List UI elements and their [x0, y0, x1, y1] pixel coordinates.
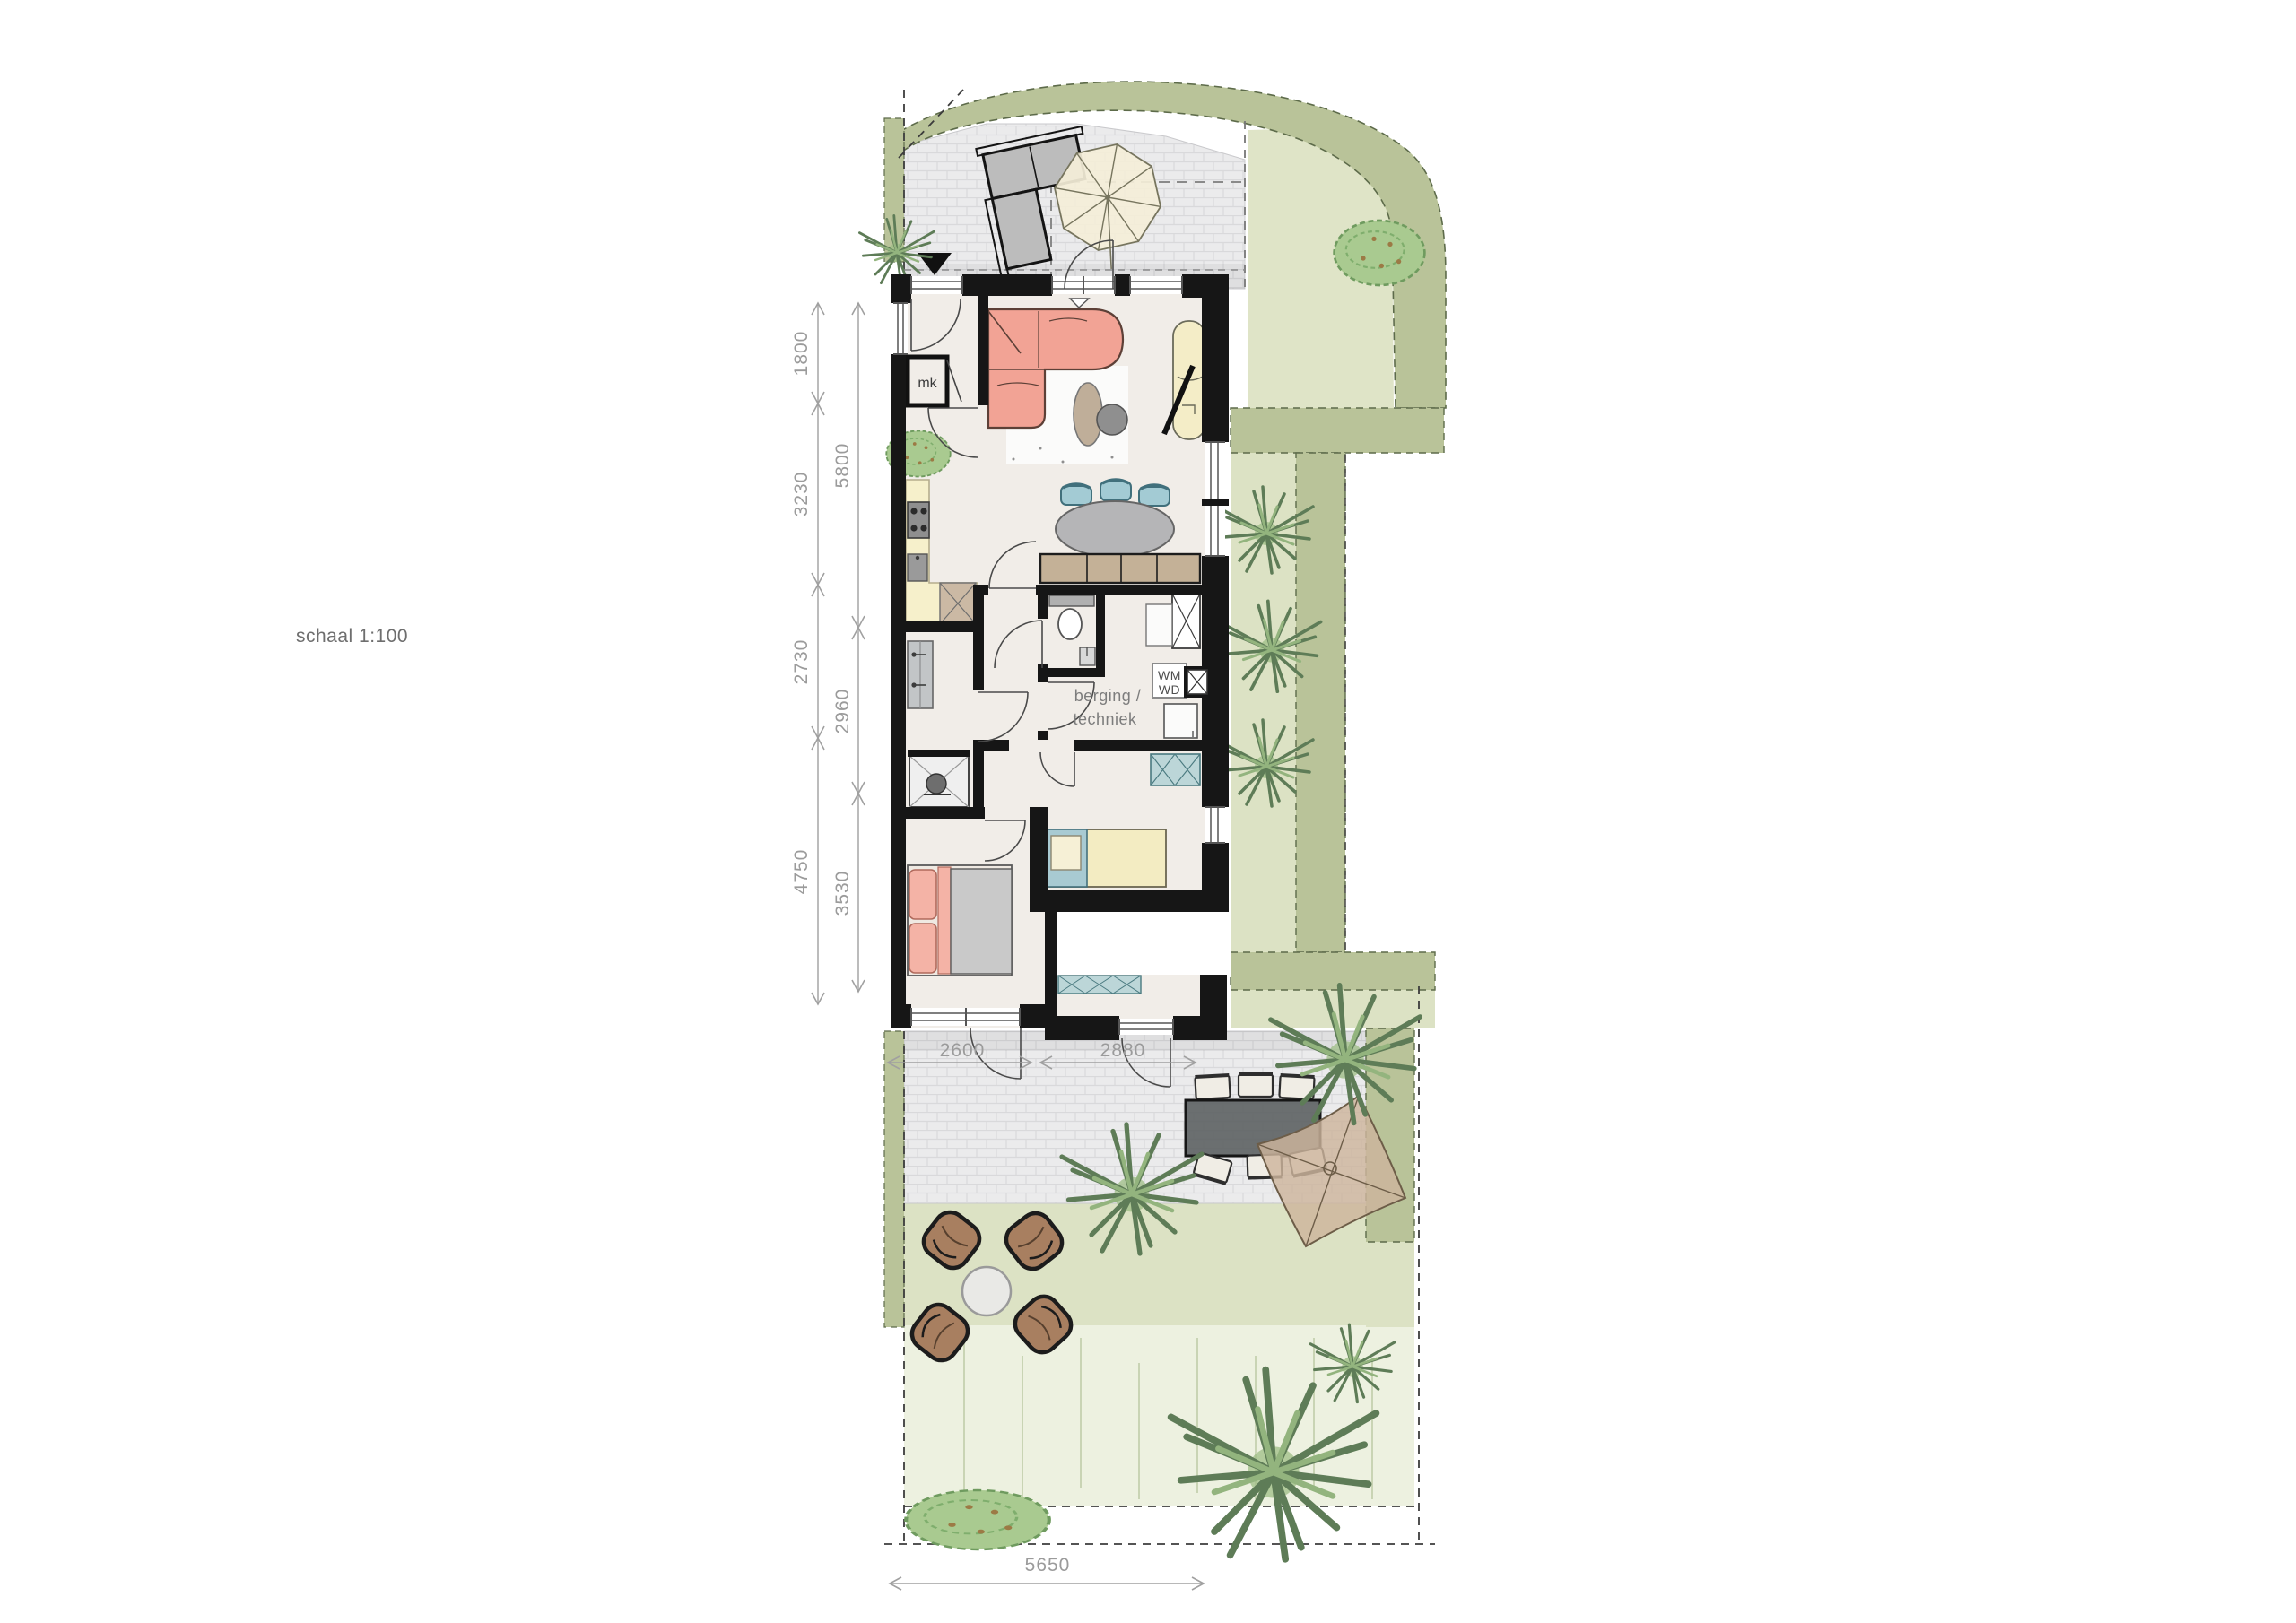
dim-2730: 2730: [791, 639, 812, 685]
toilet-bowl: [1058, 609, 1082, 639]
dim-5650: 5650: [1025, 1555, 1071, 1575]
floor-plan-page: mk: [0, 0, 2296, 1623]
child-window-right: [1205, 807, 1225, 843]
dim-1800: 1800: [791, 331, 812, 377]
shaft-box: [1187, 670, 1207, 694]
dim-4750: 4750: [791, 849, 812, 895]
hedge-step-band: [1231, 408, 1444, 453]
exterior-notch: [1051, 912, 1231, 975]
dim-5800: 5800: [832, 443, 853, 489]
dim-3530: 3530: [832, 871, 853, 916]
lawn-sage-below-hedge: [1366, 1242, 1414, 1327]
hedge-strip-right: [1296, 453, 1345, 952]
meter-cupboard-label: mk: [918, 376, 937, 391]
house: mk: [886, 240, 1231, 1087]
hedge-left-bottom: [884, 1031, 904, 1327]
dryer-label: WD: [1159, 682, 1180, 697]
hall-window-left: [893, 303, 908, 354]
back-room-window: [1119, 1019, 1173, 1035]
master-bedroom: [908, 865, 1012, 976]
storage-room-label-1: berging /: [1074, 687, 1142, 705]
master-window-bottom: [911, 1008, 1020, 1026]
teal-cabinet: [1151, 754, 1200, 785]
coffee-table-round: [1097, 404, 1127, 435]
bush-bottom-left: [906, 1490, 1049, 1549]
hob: [908, 502, 929, 538]
washer-label: WM: [1158, 668, 1181, 682]
shower-drain: [926, 774, 946, 794]
back-room: [1058, 976, 1141, 994]
dim-2600: 2600: [940, 1040, 986, 1061]
dining-table: [1056, 501, 1174, 557]
scale-label: schaal 1:100: [296, 626, 408, 647]
floorplan-canvas: mk: [0, 0, 2296, 1623]
storage-room-label-2: techniek: [1073, 710, 1137, 728]
front-door-window: [911, 276, 962, 294]
garden-side-table: [962, 1267, 1011, 1315]
hedge-bottom-band: [1231, 952, 1435, 990]
living-window-top: [1130, 276, 1182, 294]
dim-3230: 3230: [791, 472, 812, 517]
dim-2880: 2880: [1100, 1040, 1146, 1061]
dining-bench: [1040, 554, 1200, 583]
dim-2960: 2960: [832, 689, 853, 734]
living-windows-right: [1205, 442, 1225, 556]
hedge-bush-top-right: [1335, 221, 1425, 285]
